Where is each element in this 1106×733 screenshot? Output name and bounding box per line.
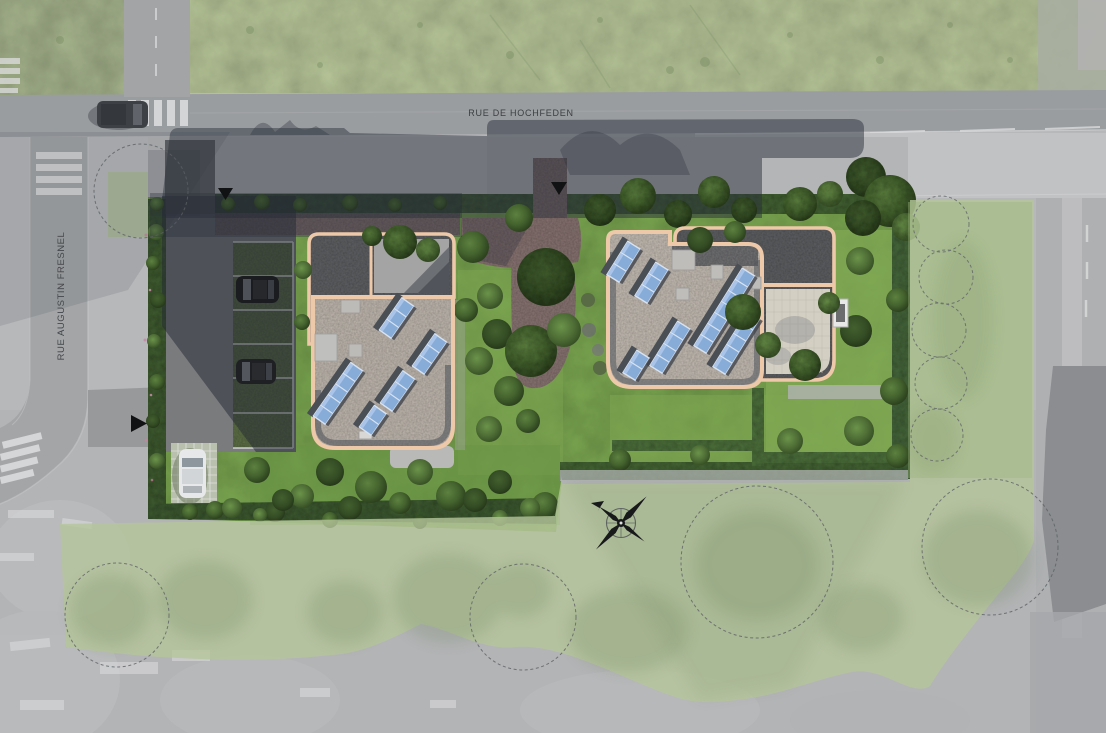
svg-text:RUE DE HOCHFEDEN: RUE DE HOCHFEDEN [468, 108, 574, 118]
svg-text:RUE AUGUSTIN FRESNEL: RUE AUGUSTIN FRESNEL [56, 232, 67, 361]
